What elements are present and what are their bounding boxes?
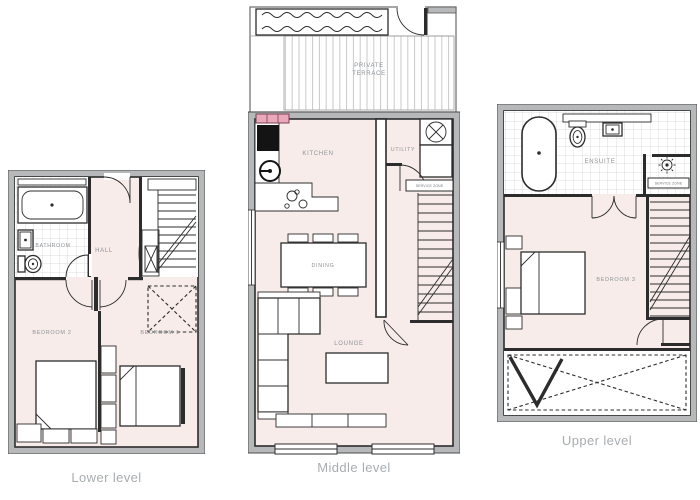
bathroom-shelf: [18, 179, 86, 185]
private-terrace: PRIVATE TERRACE: [250, 6, 456, 112]
middle-level-plan: PRIVATE TERRACE: [248, 5, 460, 455]
service-zone-label: SERVICE ZONE: [416, 184, 444, 188]
dining-chair: [338, 234, 358, 242]
tv-bench: [276, 414, 386, 427]
ensuite-label: ENSUITE: [585, 159, 616, 165]
dining-chair: [338, 288, 358, 296]
side-table: [506, 316, 522, 329]
left-window: [248, 210, 255, 285]
hall-label: HALL: [95, 248, 113, 254]
middle-level-label: Middle level: [248, 460, 460, 475]
bedroom1-label: BEDROOM 1: [140, 330, 179, 336]
upper-level-label: Upper level: [497, 433, 697, 448]
toilet: [569, 121, 586, 147]
bedroom2-bed: [36, 361, 96, 429]
bedroom3-bed: [521, 252, 585, 314]
bathroom-sink: [18, 230, 33, 250]
left-window: [497, 242, 504, 308]
service-zone-box: SERVICE ZONE: [648, 178, 689, 188]
bathroom-door-gap: [89, 254, 92, 276]
bedroom2-dresser: [17, 424, 41, 442]
terrace-label-line1: PRIVATE: [354, 63, 384, 69]
bathtub: [18, 187, 87, 223]
washing-machine: [420, 119, 452, 145]
ensuite-wall: [504, 194, 592, 197]
terrace-planter: [256, 9, 388, 35]
service-wall-top: [652, 154, 690, 157]
side-table: [506, 236, 522, 249]
ensuite-wall: [636, 194, 690, 197]
service-zone-label: SERVICE ZONE: [655, 182, 683, 186]
oven-symbol: [260, 161, 280, 181]
bathroom-area: BATHROOM: [15, 177, 92, 277]
dining-chair: [313, 234, 333, 242]
floorplan-canvas: BATHROOM HALL: [0, 0, 700, 500]
toilet: [18, 256, 41, 273]
side-table: [506, 288, 522, 314]
bedroom1-closet: [101, 375, 116, 402]
bedroom1-unit: [101, 430, 116, 444]
bottom-window: [372, 444, 434, 454]
utility-cupboard: [420, 145, 452, 177]
bathroom-label: BATHROOM: [35, 243, 70, 249]
ensuite-sink: [603, 123, 622, 136]
kitchen-label: KITCHEN: [302, 151, 333, 157]
upper-level-plan: SERVICE ZONE ENSUITE: [497, 104, 697, 422]
coffee-table: [326, 353, 388, 383]
bottom-window: [275, 444, 337, 454]
terrace-parapet: [428, 7, 456, 13]
rooflight-void-area: [504, 348, 690, 415]
utility-label: UTILITY: [391, 147, 415, 153]
service-zone-box: SERVICE ZONE: [406, 180, 453, 191]
bedroom3-label: BEDROOM 3: [596, 277, 635, 283]
bathtub: [522, 117, 556, 191]
dining-label: DINING: [311, 263, 334, 269]
bedroom1-bed: [120, 366, 180, 426]
service-wall: [643, 154, 646, 197]
terrace-label-line2: TERRACE: [352, 71, 386, 77]
dining-area: DINING: [281, 234, 366, 296]
bedroom1-headboard: [181, 368, 185, 424]
bedroom2-label: BEDROOM 2: [32, 330, 71, 336]
lower-level-plan: BATHROOM HALL: [8, 170, 205, 454]
lower-level-label: Lower level: [8, 470, 205, 485]
hall-cupboard: [139, 230, 159, 276]
bedroom2-wardrobe: [43, 429, 69, 443]
radiator: [256, 114, 289, 123]
bedroom2-wardrobe: [71, 429, 97, 443]
bedroom1-closet: [101, 404, 116, 428]
bedroom1-closet: [101, 346, 116, 373]
dining-chair: [288, 234, 308, 242]
lounge-label: LOUNGE: [334, 341, 364, 347]
fridge: [257, 125, 279, 151]
